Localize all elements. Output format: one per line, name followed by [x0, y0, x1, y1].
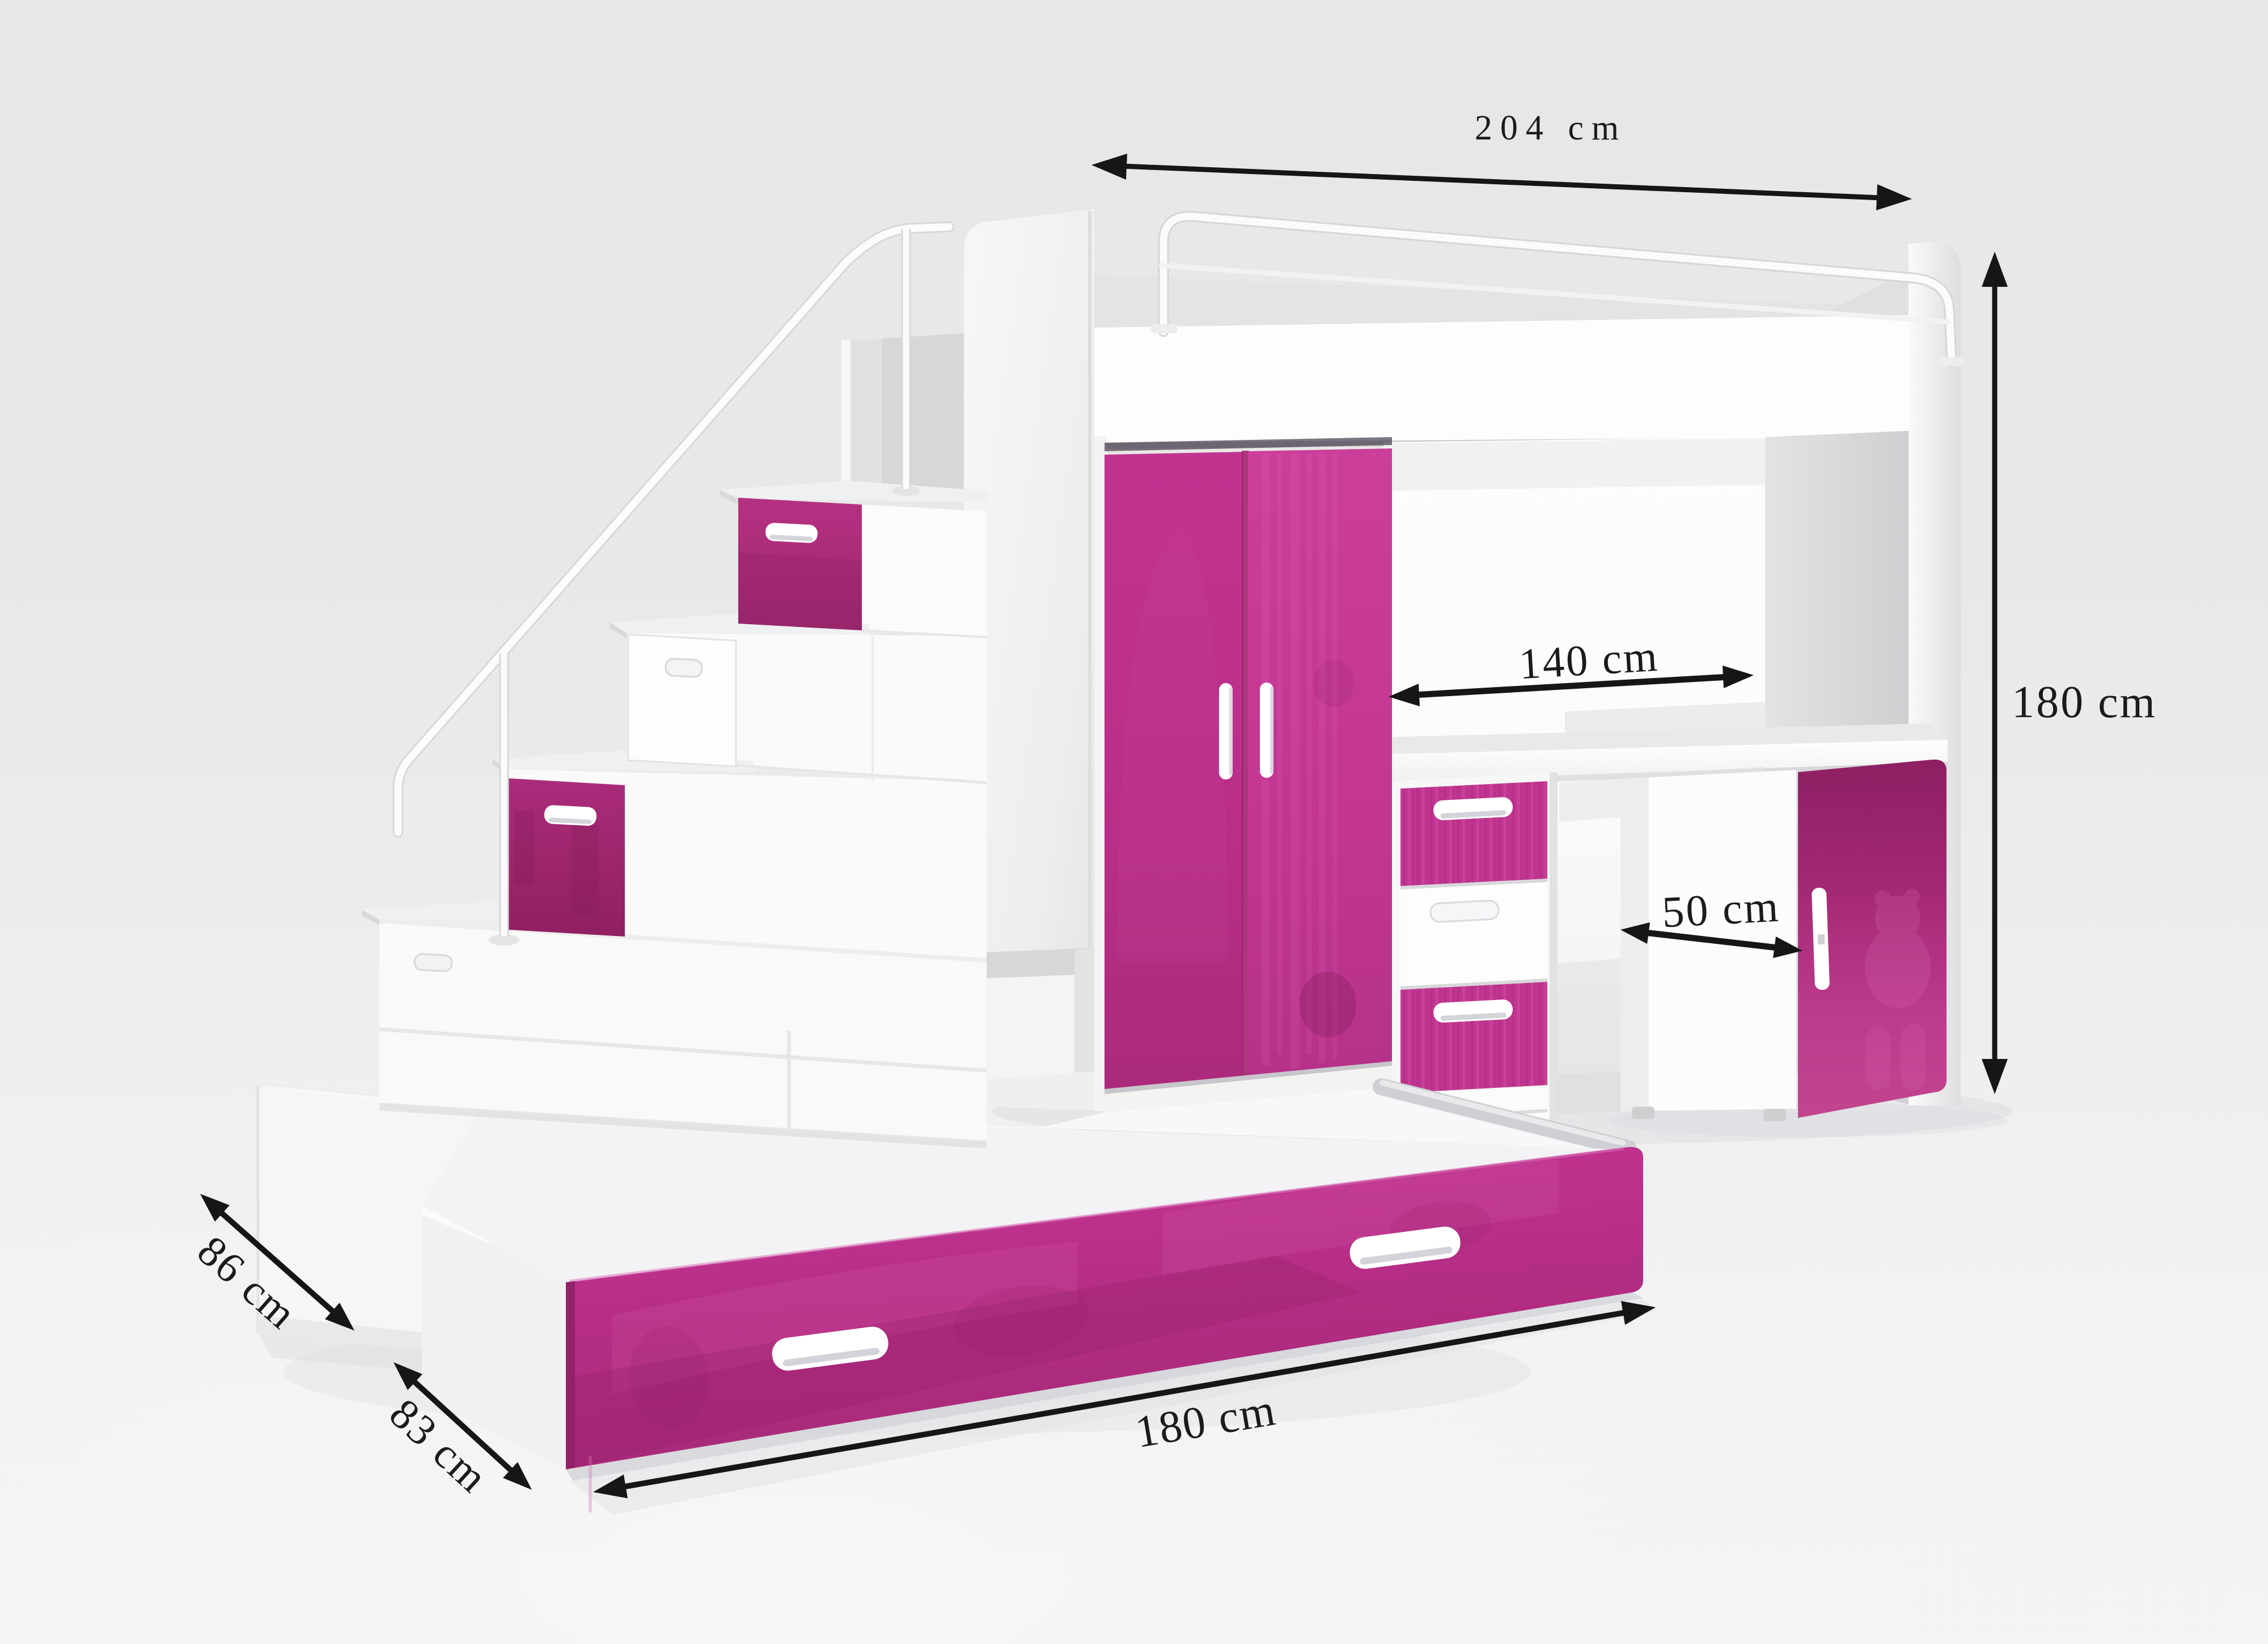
svg-text:50 cm: 50 cm: [1661, 882, 1781, 937]
svg-text:180 cm: 180 cm: [2012, 677, 2157, 727]
svg-text:140 cm: 140 cm: [1517, 632, 1660, 688]
svg-text:204 cm: 204 cm: [1475, 109, 1627, 147]
